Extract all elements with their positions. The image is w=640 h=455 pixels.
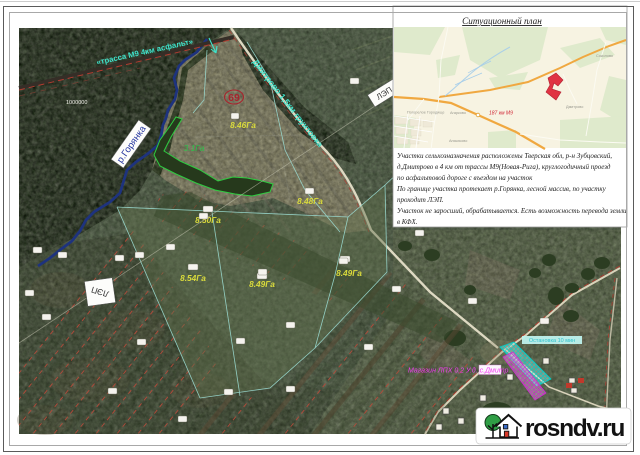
svg-text:Участки сельхозназначения рас: Участки сельхозназначения расположены Тв… bbox=[397, 152, 612, 160]
svg-text:Соколово: Соколово bbox=[596, 54, 613, 58]
svg-text:в КФХ.: в КФХ. bbox=[397, 218, 418, 226]
svg-text:Дмитрово: Дмитрово bbox=[566, 105, 583, 109]
svg-text:69: 69 bbox=[228, 92, 240, 104]
svg-text:3.1Га: 3.1Га bbox=[184, 143, 205, 153]
svg-text:8.46Га: 8.46Га bbox=[230, 120, 256, 130]
svg-text:Агарково: Агарково bbox=[450, 111, 466, 115]
svg-text:8.49Га: 8.49Га bbox=[249, 279, 275, 289]
svg-text:Участок не заросший, обрабатыв: Участок не заросший, обрабатывается. Ест… bbox=[397, 207, 627, 215]
svg-text:Магазин ЛПХ 0,2 У.д. с.Дмитр: Магазин ЛПХ 0,2 У.д. с.Дмитр bbox=[408, 367, 508, 375]
svg-text:1000000: 1000000 bbox=[66, 100, 87, 106]
svg-text:8.49Га: 8.49Га bbox=[336, 268, 362, 278]
svg-text:8.54Га: 8.54Га bbox=[180, 273, 206, 283]
svg-text:Погорелое Городище: Погорелое Городище bbox=[407, 111, 444, 115]
svg-text:д.Дмитрово в 4 км от трассы: д.Дмитрово в 4 км от трассы М9(Новая-Риг… bbox=[397, 163, 611, 171]
svg-text:проходит ЛЭП.: проходит ЛЭП. bbox=[397, 196, 444, 204]
svg-text:по асфальтовой дороге с въездо: по асфальтовой дороге с въездом на участ… bbox=[397, 174, 533, 182]
svg-text:Апьчиково: Апьчиково bbox=[449, 139, 467, 143]
svg-text:Остановка 10 мин: Остановка 10 мин bbox=[529, 338, 575, 344]
svg-text:По границе участка протекает р: По границе участка протекает р.Горянка, … bbox=[396, 185, 607, 193]
svg-text:187 км М9: 187 км М9 bbox=[489, 111, 513, 117]
svg-text:8.48Га: 8.48Га bbox=[297, 196, 323, 206]
svg-text:rosndv.ru: rosndv.ru bbox=[525, 415, 624, 442]
svg-text:Ситуационный план: Ситуационный план bbox=[462, 16, 542, 26]
